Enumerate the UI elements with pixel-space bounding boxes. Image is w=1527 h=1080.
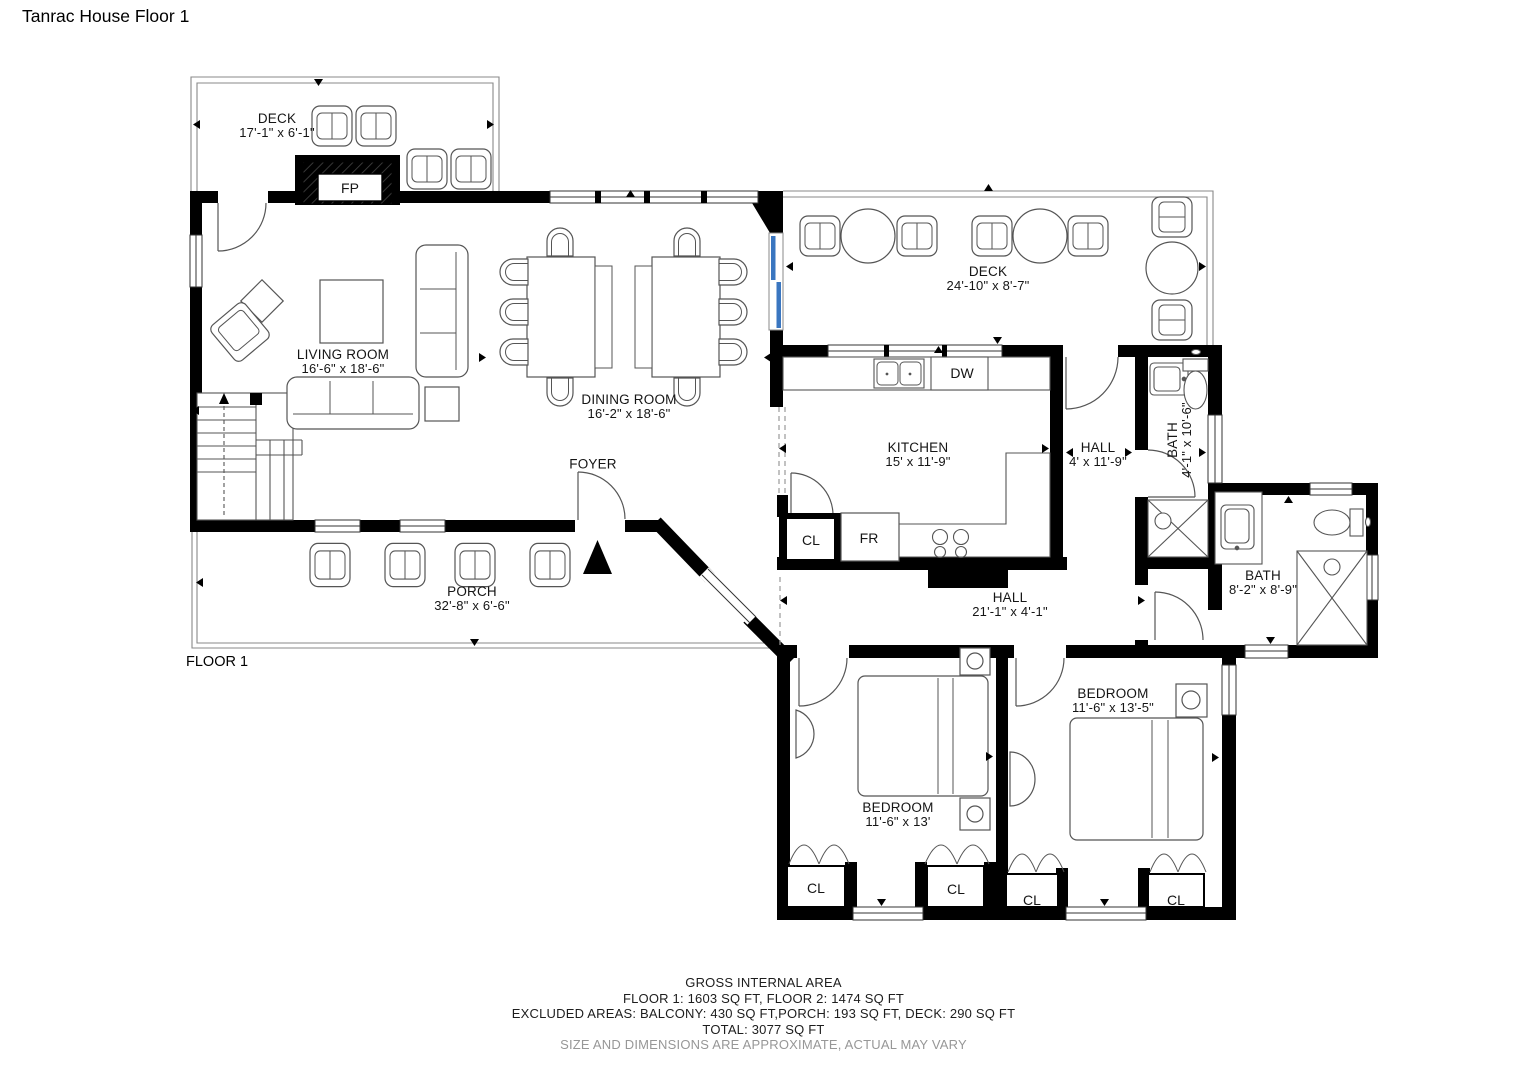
room-label-deck-top: DECK 17'-1" x 6'-1" [239,111,315,141]
porch-furniture [310,543,570,586]
floor-label: FLOOR 1 [186,654,248,670]
closet-label-bed2-a: CL [1023,892,1041,908]
room-label-living: LIVING ROOM 16'-6" x 18'-6" [297,347,389,377]
sliding-door [769,233,783,330]
floor-plan-page: Tanrac House Floor 1 DECK 17'-1" x 6'-1"… [0,0,1527,1080]
side-table [425,387,459,421]
dishwasher-label: DW [950,365,973,381]
shower [1148,500,1208,557]
floor-plan-canvas [0,0,1527,1080]
excluded-areas: EXCLUDED AREAS: BALCONY: 430 SQ FT,PORCH… [0,1006,1527,1022]
room-label-kitchen: KITCHEN 15' x 11'-9" [885,440,950,470]
bed [858,676,988,796]
closet-label-bed1-b: CL [947,881,965,897]
entrance-arrow [583,540,612,574]
closet-label-kitchen: CL [802,532,820,548]
stairs [197,393,302,520]
area-summary: GROSS INTERNAL AREA FLOOR 1: 1603 SQ FT,… [0,975,1527,1053]
floor-areas: FLOOR 1: 1603 SQ FT, FLOOR 2: 1474 SQ FT [0,991,1527,1007]
shower [1297,551,1367,645]
closet-label-bed2-b: CL [1167,892,1185,908]
bifold-doors [1008,854,1206,872]
dresser [1010,752,1035,806]
room-label-bath-lower: BATH 8'-2" x 8'-9" [1229,568,1297,598]
sofa-horizontal [287,377,419,429]
coffee-table [320,280,383,343]
room-label-bedroom-right: BEDROOM 11'-6" x 13'-5" [1072,686,1154,716]
bifold-doors [789,845,989,864]
closet-label-bed1-a: CL [807,880,825,896]
fridge-label: FR [860,530,879,546]
toilet [1183,350,1208,410]
kitchen-sink [874,359,924,388]
room-label-hall-upper: HALL 4' x 11'-9" [1069,440,1127,470]
sofa-vertical [416,245,468,377]
page-title: Tanrac House Floor 1 [22,6,189,27]
bed [1070,718,1203,840]
nightstand [1176,684,1207,717]
room-label-deck-right: DECK 24'-10" x 8'-7" [947,264,1030,294]
nightstand [960,798,990,830]
bedroom-right-furniture [1006,684,1207,907]
room-label-foyer: FOYER [569,456,617,471]
toilet [1314,509,1371,536]
room-label-dining: DINING ROOM 16'-2" x 18'-6" [581,392,676,422]
dining-room-furniture [500,228,747,406]
gross-area-heading: GROSS INTERNAL AREA [0,975,1527,991]
disclaimer: SIZE AND DIMENSIONS ARE APPROXIMATE, ACT… [0,1037,1527,1053]
room-label-porch: PORCH 32'-8" x 6'-6" [434,584,510,614]
bedroom-left-furniture [787,648,990,907]
nightstand [960,648,990,675]
fireplace-label: FP [341,180,359,196]
room-label-bedroom-left: BEDROOM 11'-6" x 13' [862,800,933,830]
room-label-hall-lower: HALL 21'-1" x 4'-1" [972,590,1048,620]
total-area: TOTAL: 3077 SQ FT [0,1022,1527,1038]
dresser [796,710,814,758]
room-label-bath-upper: BATH 4'-1" x 10'-6" [1165,402,1195,478]
